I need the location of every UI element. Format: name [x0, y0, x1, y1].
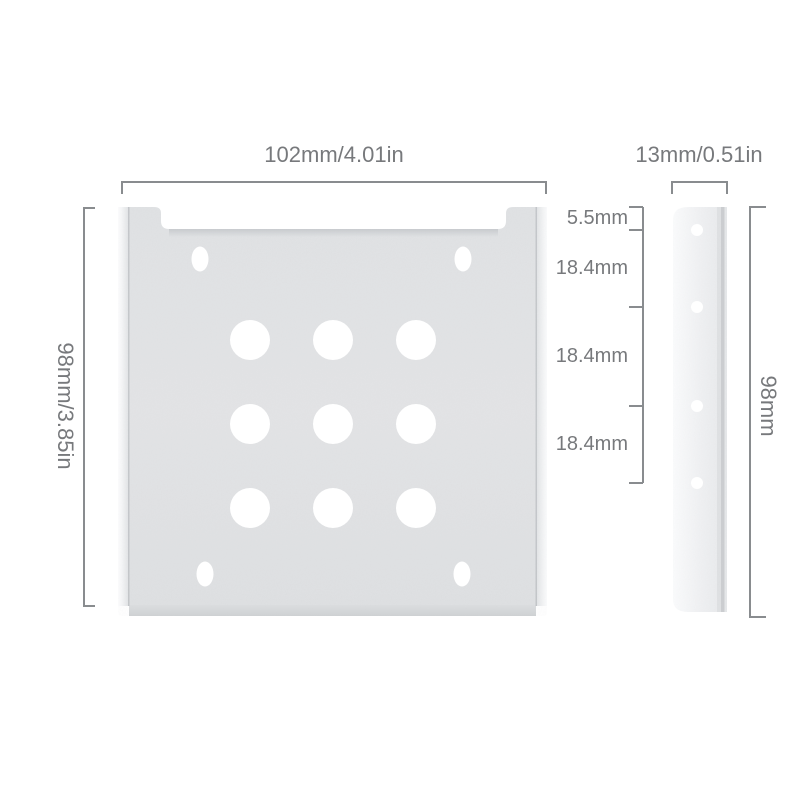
metal-texture: [110, 200, 555, 625]
hole-spacing-label-4: 18.4mm: [498, 431, 628, 457]
hole-spacing-label-3: 18.4mm: [498, 343, 628, 369]
front-width-dim-line: [122, 182, 546, 194]
front-height-dim-line: [84, 208, 95, 606]
bracket-side-view: [665, 200, 735, 620]
side-width-dim-line: [672, 182, 727, 194]
front-width-dim-label: 102mm/4.01in: [184, 141, 484, 169]
bracket-diagram-canvas: [0, 0, 800, 800]
hole-spacing-label-1: 5.5mm: [498, 205, 628, 231]
bracket-front-view: [110, 200, 555, 625]
product-dimension-diagram: 102mm/4.01in 13mm/0.51in 98mm/3.85in 98m…: [0, 0, 800, 800]
metal-texture-side: [665, 200, 735, 620]
front-height-dim-label: 98mm/3.85in: [51, 321, 79, 491]
side-width-dim-label: 13mm/0.51in: [589, 141, 800, 169]
side-height-dim-label: 98mm: [754, 366, 782, 446]
hole-spacing-label-2: 18.4mm: [498, 255, 628, 281]
hole-spacing-dim-line: [629, 207, 643, 483]
